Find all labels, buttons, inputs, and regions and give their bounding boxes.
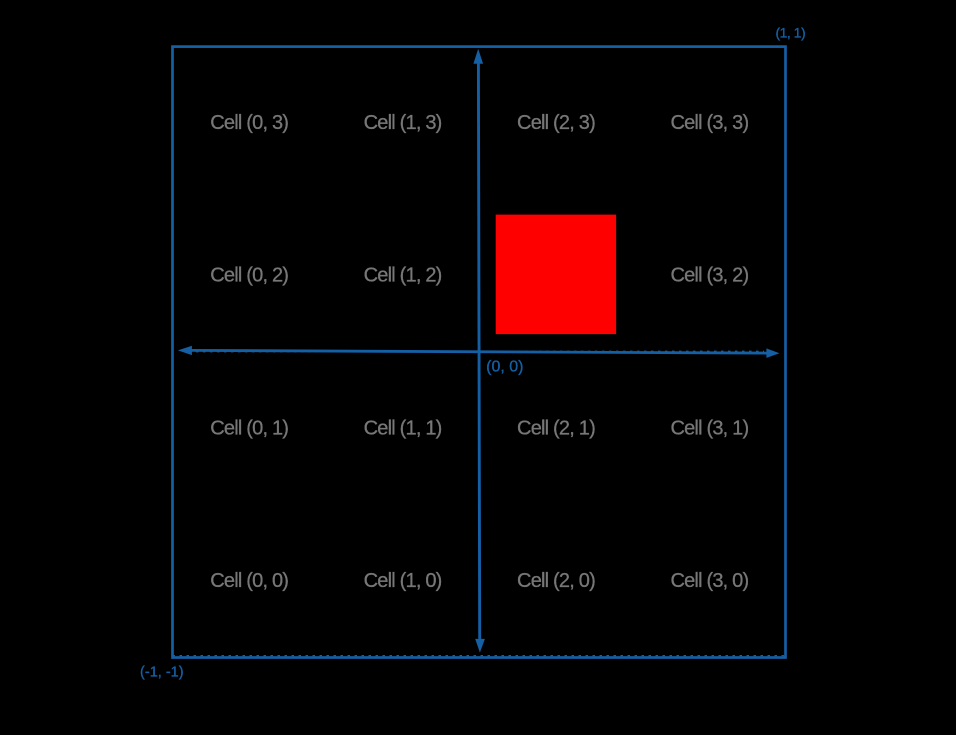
svg-text:Cell (1, 2): Cell (1, 2) bbox=[364, 265, 442, 287]
svg-text:Cell (3, 2): Cell (3, 2) bbox=[670, 265, 748, 287]
svg-text:Cell (3, 0): Cell (3, 0) bbox=[670, 570, 748, 592]
svg-text:Cell (1, 1): Cell (1, 1) bbox=[364, 417, 442, 439]
svg-text:Cell (0, 0): Cell (0, 0) bbox=[210, 570, 288, 592]
svg-text:Cell (0, 3): Cell (0, 3) bbox=[210, 112, 288, 134]
svg-text:Cell (2, 1): Cell (2, 1) bbox=[517, 417, 595, 439]
svg-text:(1, 1): (1, 1) bbox=[775, 24, 805, 40]
svg-text:Cell (3, 3): Cell (3, 3) bbox=[670, 112, 748, 134]
svg-text:Cell (1, 0): Cell (1, 0) bbox=[364, 570, 442, 592]
svg-text:Cell (0, 2): Cell (0, 2) bbox=[210, 265, 288, 287]
svg-text:(-1, -1): (-1, -1) bbox=[140, 664, 184, 680]
svg-text:Cell (2, 0): Cell (2, 0) bbox=[517, 570, 595, 592]
svg-text:Cell (1, 3): Cell (1, 3) bbox=[364, 112, 442, 134]
svg-text:Cell (3, 1): Cell (3, 1) bbox=[670, 417, 748, 439]
svg-text:(0, 0): (0, 0) bbox=[486, 359, 523, 376]
svg-text:Cell (0, 1): Cell (0, 1) bbox=[210, 417, 288, 439]
svg-text:Cell (2, 3): Cell (2, 3) bbox=[517, 112, 595, 134]
